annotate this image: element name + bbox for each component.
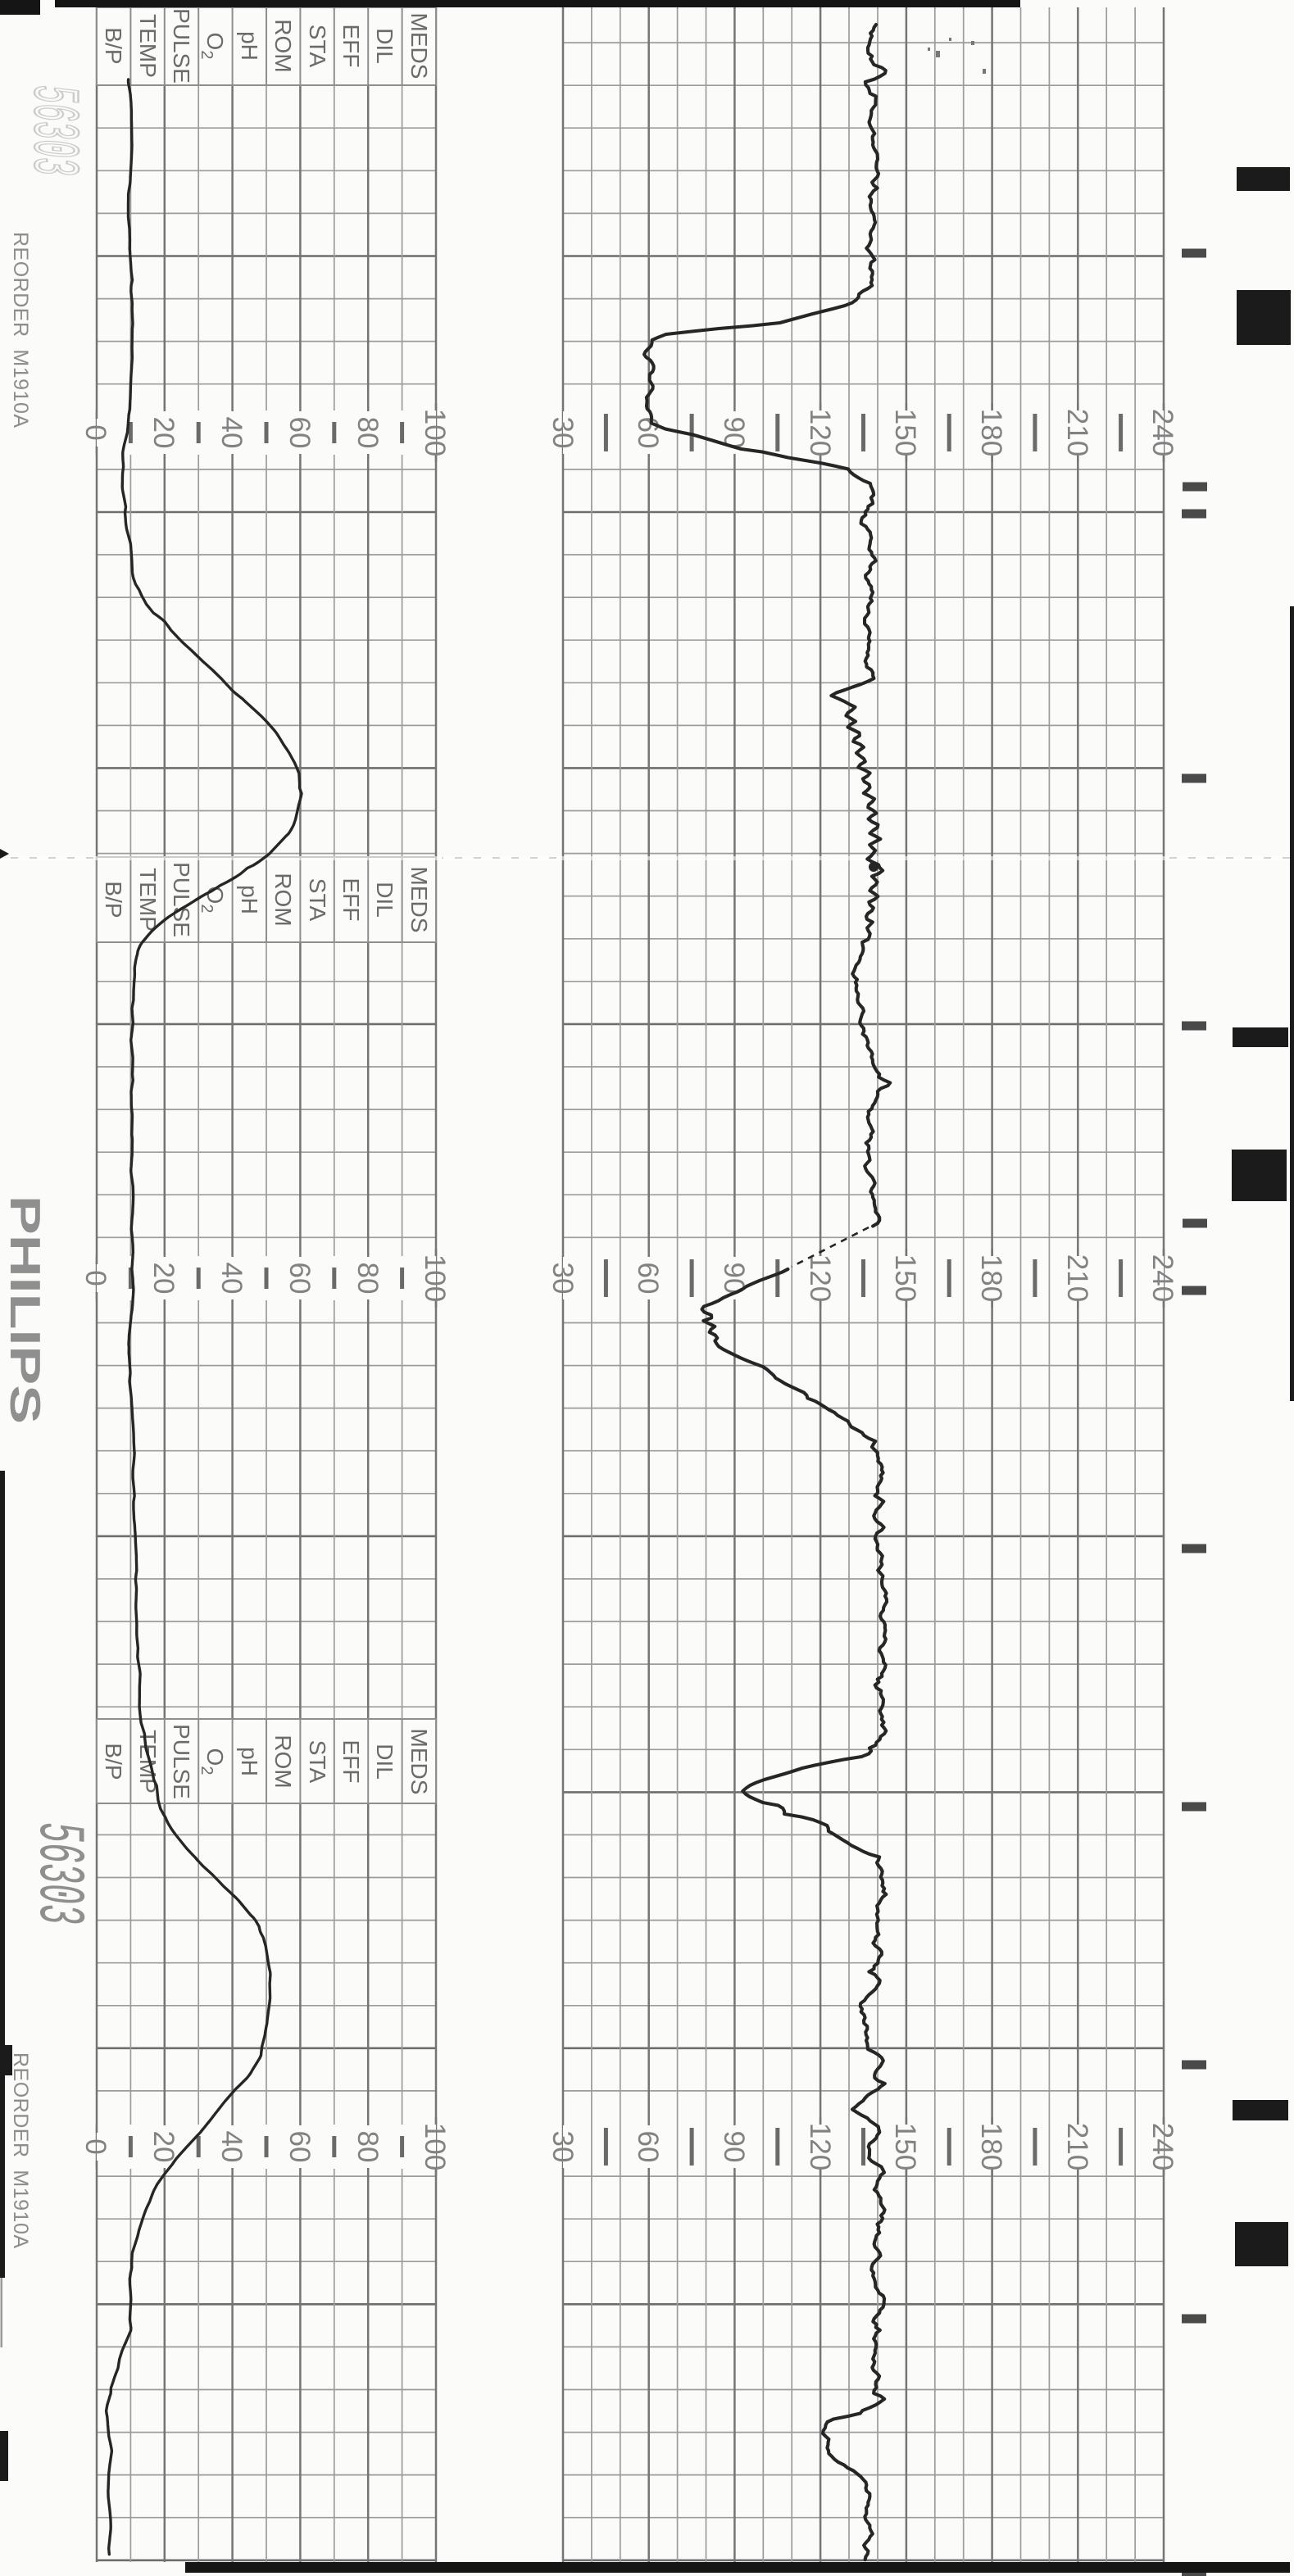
svg-text:PULSE: PULSE xyxy=(169,862,194,937)
svg-text:210: 210 xyxy=(1061,2123,1093,2170)
svg-text:30: 30 xyxy=(547,1263,579,1295)
svg-text:60: 60 xyxy=(284,2131,316,2163)
svg-text:100: 100 xyxy=(419,409,451,456)
svg-text:STA: STA xyxy=(305,878,330,922)
svg-text:TEMP: TEMP xyxy=(135,868,161,932)
svg-text:60: 60 xyxy=(632,417,664,449)
svg-text:60: 60 xyxy=(284,1263,316,1295)
svg-text:20: 20 xyxy=(148,1263,179,1295)
svg-text:0: 0 xyxy=(79,2138,111,2154)
svg-text:ROM: ROM xyxy=(270,19,296,72)
svg-text:56303: 56303 xyxy=(20,1822,94,1925)
svg-text:pH: pH xyxy=(237,31,262,61)
svg-text:PULSE: PULSE xyxy=(169,1724,194,1799)
svg-text:MEDS: MEDS xyxy=(406,1729,432,1795)
svg-text:30: 30 xyxy=(547,2131,579,2163)
svg-text:TEMP: TEMP xyxy=(135,14,161,78)
svg-text:PHILIPS: PHILIPS xyxy=(1,1195,48,1424)
svg-text:180: 180 xyxy=(975,1254,1007,1302)
svg-text:100: 100 xyxy=(419,2123,451,2170)
svg-text:20: 20 xyxy=(148,417,179,449)
svg-text:B/P: B/P xyxy=(101,1743,126,1780)
svg-text:MEDS: MEDS xyxy=(406,867,432,933)
svg-text:DIL: DIL xyxy=(372,28,397,64)
svg-text:pH: pH xyxy=(237,1747,262,1776)
svg-text:ROM: ROM xyxy=(270,1735,296,1788)
svg-text:210: 210 xyxy=(1061,1254,1093,1302)
svg-text:56303: 56303 xyxy=(16,85,90,175)
svg-text:B/P: B/P xyxy=(101,881,126,918)
svg-text:REORDER M1910A: REORDER M1910A xyxy=(9,232,32,429)
svg-text:REORDER M1910A: REORDER M1910A xyxy=(9,2052,32,2249)
svg-text:120: 120 xyxy=(804,2123,836,2170)
svg-text:EFF: EFF xyxy=(338,25,364,68)
svg-text:90: 90 xyxy=(718,2131,750,2163)
svg-text:DIL: DIL xyxy=(372,882,397,918)
svg-text:60: 60 xyxy=(632,2131,664,2163)
svg-text:80: 80 xyxy=(352,417,384,449)
svg-text:40: 40 xyxy=(216,417,247,449)
svg-text:40: 40 xyxy=(216,2131,247,2163)
svg-text:ROM: ROM xyxy=(270,873,296,926)
svg-text:180: 180 xyxy=(975,2123,1007,2170)
svg-text:120: 120 xyxy=(804,409,836,456)
svg-text:240: 240 xyxy=(1146,1254,1178,1302)
svg-text:0: 0 xyxy=(79,424,111,440)
svg-text:DIL: DIL xyxy=(372,1744,397,1780)
svg-text:240: 240 xyxy=(1146,2123,1178,2170)
svg-text:150: 150 xyxy=(889,2123,921,2170)
svg-text:30: 30 xyxy=(547,417,579,449)
svg-text:0: 0 xyxy=(79,1270,111,1286)
svg-text:180: 180 xyxy=(975,409,1007,456)
svg-text:pH: pH xyxy=(237,885,262,914)
svg-text:150: 150 xyxy=(889,1254,921,1302)
svg-text:EFF: EFF xyxy=(338,878,364,922)
svg-text:100: 100 xyxy=(419,1254,451,1302)
svg-text:80: 80 xyxy=(352,2131,384,2163)
svg-text:20: 20 xyxy=(148,2131,179,2163)
svg-text:B/P: B/P xyxy=(101,27,126,64)
svg-text:150: 150 xyxy=(889,409,921,456)
svg-text:EFF: EFF xyxy=(338,1740,364,1784)
svg-text:MEDS: MEDS xyxy=(406,13,432,79)
svg-text:210: 210 xyxy=(1061,409,1093,456)
svg-text:60: 60 xyxy=(632,1263,664,1295)
svg-text:PULSE: PULSE xyxy=(169,8,194,84)
svg-text:120: 120 xyxy=(804,1254,836,1302)
svg-text:60: 60 xyxy=(284,417,316,449)
svg-text:40: 40 xyxy=(216,1263,247,1295)
svg-text:80: 80 xyxy=(352,1263,384,1295)
svg-text:STA: STA xyxy=(305,1740,330,1784)
svg-text:240: 240 xyxy=(1146,409,1178,456)
svg-text:STA: STA xyxy=(305,25,330,68)
